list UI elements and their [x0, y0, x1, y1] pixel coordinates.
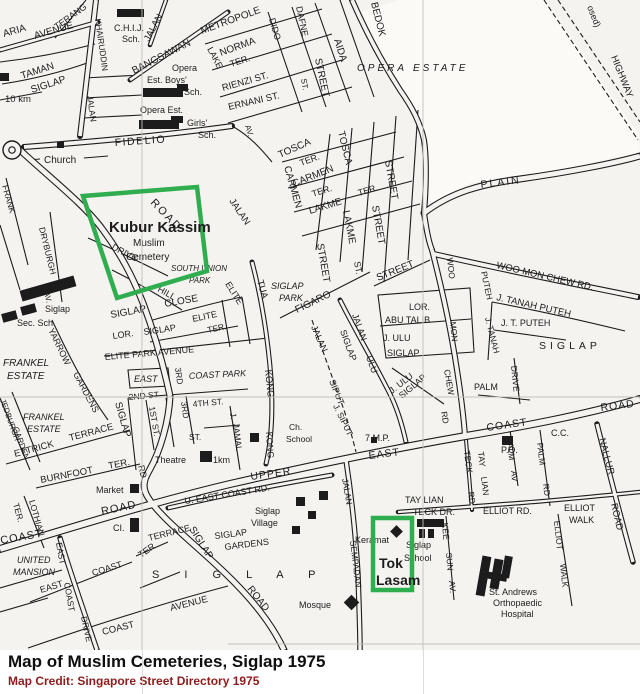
street-label: S I G L A P	[152, 569, 326, 581]
building-marker	[130, 518, 139, 532]
street-label: Opera	[172, 63, 197, 73]
building-marker	[117, 9, 144, 17]
street-label: UNITED	[17, 555, 51, 565]
street-label: J. ULU	[383, 333, 411, 343]
tok-lasam-annotation-label: Tok	[379, 555, 403, 571]
street-label: School	[404, 553, 432, 563]
tok-lasam-annotation-label: Lasam	[376, 572, 420, 588]
street-label: Church	[44, 155, 76, 166]
street-label: 10 km	[5, 94, 31, 105]
street-label: J.	[228, 412, 239, 420]
building-marker	[171, 116, 183, 123]
street-label: Opera Est.	[140, 105, 183, 115]
street-label: St. Andrews	[489, 587, 538, 597]
street-label: ST.	[189, 432, 201, 442]
street-label: CI.	[113, 523, 125, 533]
street-label: TECK DR.	[413, 507, 455, 517]
street-label: Muslim	[133, 238, 165, 249]
street-label: PALM	[505, 437, 517, 460]
street-label: KEE	[440, 522, 451, 540]
street-label: 1km	[213, 455, 230, 465]
street-label: WALK	[569, 515, 594, 525]
street-label: EAST	[134, 374, 159, 384]
street-label: Theatre	[155, 455, 186, 465]
map-screenshot: ARIAAVENUETERANGTAMANSIGLAP10 kmC.H.I.J.…	[0, 0, 640, 694]
building-marker	[308, 511, 316, 519]
street-label: AV.	[447, 580, 458, 593]
caption-block: Map of Muslim Cemeteries, Siglap 1975 Ma…	[0, 650, 640, 694]
street-label: Orthopaedic	[493, 598, 543, 608]
street-label: Ch.	[289, 422, 302, 432]
street-label: Sec. Sch.	[17, 318, 56, 328]
building-marker	[428, 529, 434, 538]
street-label: FRANKEL	[23, 412, 65, 422]
street-label: Hospital	[501, 609, 534, 619]
street-label: C.C.	[551, 428, 569, 438]
street-label: OPERA	[357, 63, 407, 74]
street-label: School	[286, 434, 312, 444]
map-credit: Map Credit: Singapore Street Directory 1…	[8, 673, 632, 689]
street-label: SIGLAP	[387, 348, 420, 358]
street-label: SIGLAP	[539, 340, 601, 352]
street-label: 7 M.P.	[365, 433, 390, 443]
street-label: LOR.	[409, 302, 430, 312]
street-label: SIGLAP	[271, 281, 304, 291]
street-label: Sch.	[198, 130, 216, 140]
building-marker	[250, 433, 259, 442]
street-label: ESTATE	[413, 63, 468, 74]
street-label: MON	[448, 321, 460, 342]
street-label: PARK	[279, 293, 304, 303]
street-label: Siglap	[45, 304, 70, 314]
street-label: J. T. PUTEH	[501, 318, 550, 328]
street-label: Sch.	[122, 34, 140, 44]
street-label: FRANKEL	[3, 358, 49, 369]
building-marker	[200, 451, 212, 462]
map-canvas: ARIAAVENUETERANGTAMANSIGLAP10 kmC.H.I.J.…	[0, 0, 640, 652]
street-label: PALM	[474, 382, 498, 392]
roundabout-center	[9, 147, 15, 153]
street-label: RD	[466, 491, 477, 504]
street-label: Market	[96, 485, 124, 495]
street-label: KONG	[264, 431, 276, 458]
street-label: C.H.I.J.	[114, 23, 144, 33]
street-label: Siglap	[255, 506, 280, 516]
street-label: ELLIOT RD.	[483, 506, 532, 516]
building-marker	[319, 491, 328, 500]
building-marker	[417, 519, 444, 527]
street-label: ELLIOT	[564, 503, 596, 513]
building-marker	[296, 497, 305, 506]
street-label: Girls'	[187, 118, 207, 128]
kubur-kassim-annotation-label: Kubur Kassim	[109, 219, 211, 236]
street-label: Sch.	[184, 87, 202, 97]
street-label: RD	[541, 483, 552, 496]
street-label: RD	[439, 411, 451, 425]
street-label: Est. Boys'	[147, 75, 187, 85]
building-marker	[0, 73, 9, 81]
street-label: MANSION	[13, 567, 56, 577]
street-label: TAY	[476, 451, 488, 468]
building-marker	[419, 529, 425, 538]
scan-fold-line	[142, 650, 143, 694]
street-label: TAY LIAN	[405, 495, 444, 505]
street-label: ESTATE	[7, 371, 45, 382]
street-label: ESTATE	[27, 424, 62, 434]
street-label: Mosque	[299, 600, 331, 610]
building-marker	[292, 526, 300, 534]
street-label: Village	[251, 518, 278, 528]
map-title: Map of Muslim Cemeteries, Siglap 1975	[8, 651, 632, 673]
street-label: AV	[509, 470, 520, 482]
scan-fold-line	[423, 650, 424, 694]
building-marker	[57, 142, 64, 148]
building-marker	[130, 484, 139, 493]
street-label: SUN	[444, 552, 456, 571]
